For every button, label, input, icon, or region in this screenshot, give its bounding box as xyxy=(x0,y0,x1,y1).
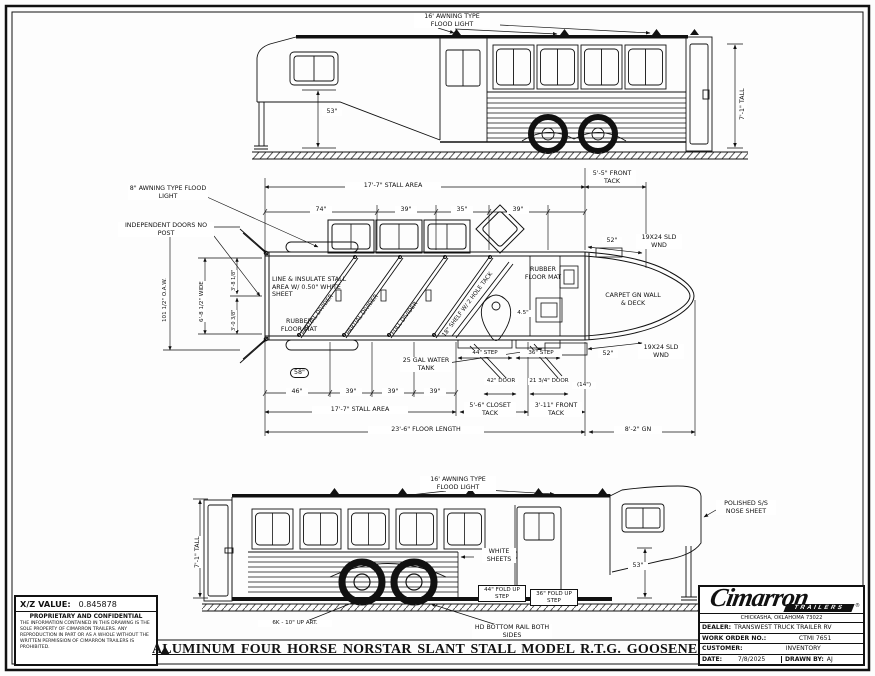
dim-gooseneck-length: 8'-2" GN xyxy=(614,426,662,434)
dim-overall-height-top: 7'-1" TALL xyxy=(739,88,747,120)
dim-inside-width: 6'-8 1/2" WIDE xyxy=(199,281,206,322)
note-white-sheets: WHITE SHEETS xyxy=(482,548,516,563)
dim-closet-tack: 5'-6" CLOSET TACK xyxy=(464,402,516,417)
confidential-title: PROPRIETARY AND CONFIDENTIAL xyxy=(16,614,156,620)
dim-front-tack-bottom: 3'-11" FRONT TACK xyxy=(530,402,582,417)
work-order-label: WORK ORDER NO.: xyxy=(702,635,766,642)
dim-rear-opening-1: 3'-8 1/8" xyxy=(231,270,237,291)
dim-45: 4.5" xyxy=(512,310,534,317)
confidential-body: THE INFORMATION CONTAINED IN THIS DRAWIN… xyxy=(16,620,156,651)
note-axle: 6K - 10" UP ART. xyxy=(258,620,332,627)
dim-stall-area-bottom: 17'-7" STALL AREA xyxy=(312,406,408,414)
xz-value-row: X/Z VALUE: 0.845878 xyxy=(16,597,156,612)
brand-banner: TRAILERS xyxy=(783,604,854,612)
dim-35: 35" xyxy=(451,206,473,214)
dim-floor-length: 23'-6" FLOOR LENGTH xyxy=(368,426,484,434)
top-view-linework xyxy=(252,29,748,159)
dim-step-36: 36" STEP xyxy=(520,350,562,357)
dim-46: 46" xyxy=(286,388,308,396)
dim-52-top: 52" xyxy=(602,237,622,245)
note-hd-bottom-rail: HD BOTTOM RAIL BOTH SIDES xyxy=(472,624,552,639)
dim-rear-opening-2: 3'-0 3/8" xyxy=(231,310,237,331)
dim-overall-height-bottom: 7'-1" TALL xyxy=(194,536,202,568)
dim-14: (14") xyxy=(572,382,596,389)
work-order-row: WORK ORDER NO.: CTMI 7651 xyxy=(700,634,863,645)
label-fold-step-36: 36" FOLD UP STEP xyxy=(530,589,578,606)
note-line-insulate: LINE & INSULATE STALL AREA W/ 0.50" WHIT… xyxy=(272,276,348,299)
label-sld-wnd-top: 19X24 SLD WND xyxy=(636,234,682,249)
label-independent-doors: INDEPENDENT DOORS NO POST xyxy=(118,222,214,237)
top-view-dimensions xyxy=(302,25,743,148)
label-flood-light-bottom: 16' AWNING TYPE FLOOD LIGHT xyxy=(420,476,496,491)
brand-address: CHICKASHA, OKLAHOMA 73022 xyxy=(700,614,863,623)
dim-door-42: 42" DOOR xyxy=(484,378,518,385)
cimarron-logo: Cimarron TRAILERS ® xyxy=(700,587,863,614)
dim-stall-area-top: 17'-7" STALL AREA xyxy=(345,182,441,190)
dim-74: 74" xyxy=(310,206,332,214)
xz-value-label: X/Z VALUE: xyxy=(20,599,71,609)
note-polished-nose-sheet: POLISHED S/S NOSE SHEET xyxy=(716,500,776,515)
dim-39c: 39" xyxy=(340,388,362,396)
note-water-tank: 25 GAL WATER TANK xyxy=(400,357,452,372)
dim-39a: 39" xyxy=(395,206,417,214)
dim-39d: 39" xyxy=(382,388,404,396)
note-rubber-floor-mat-right: RUBBER FLOOR MAT xyxy=(520,266,566,281)
drawing-title: ALUMINUM FOUR HORSE NORSTAR SLANT STALL … xyxy=(152,642,698,658)
xz-value: 0.845878 xyxy=(79,600,117,609)
date-cell: DATE: 7/8/2025 xyxy=(702,656,778,663)
dim-52-bottom: 52" xyxy=(598,350,618,358)
dealer-row: DEALER: TRANSWEST TRUCK TRAILER RV xyxy=(700,623,863,634)
drawing-sheet: 16' AWNING TYPE FLOOD LIGHT 53" 7'-1" TA… xyxy=(0,0,875,676)
dealer-label: DEALER: xyxy=(702,624,731,631)
title-block: Cimarron TRAILERS ® CHICKASHA, OKLAHOMA … xyxy=(698,585,865,666)
dim-gn-height-top: 53" xyxy=(322,108,342,116)
label-fold-step-44: 44" FOLD UP STEP xyxy=(478,585,526,602)
date-label: DATE: xyxy=(702,656,722,663)
proprietary-block: X/Z VALUE: 0.845878 PROPRIETARY AND CONF… xyxy=(14,595,158,666)
drawn-by-value: AJ xyxy=(827,656,833,663)
dim-39b: 39" xyxy=(507,206,529,214)
customer-label: CUSTOMER: xyxy=(702,645,743,652)
customer-value: INVENTORY xyxy=(746,645,861,652)
label-flood-light-top: 16' AWNING TYPE FLOOD LIGHT xyxy=(414,13,490,28)
label-sld-wnd-bottom: 19X24 SLD WND xyxy=(638,344,684,359)
dim-step-44: 44" STEP xyxy=(464,350,506,357)
drawn-by-label: DRAWN BY: xyxy=(785,656,824,663)
dim-door-21: 21 3/4" DOOR xyxy=(528,378,570,385)
label-awning-light-plan: 8" AWNING TYPE FLOOD LIGHT xyxy=(128,185,208,200)
drawn-by-cell: DRAWN BY: AJ xyxy=(781,656,861,663)
work-order-value: CTMI 7651 xyxy=(769,635,861,642)
date-value: 7/8/2025 xyxy=(725,656,778,663)
date-row: DATE: 7/8/2025 DRAWN BY: AJ xyxy=(700,655,863,665)
dim-front-tack-top: 5'-5" FRONT TACK xyxy=(588,170,636,185)
registered-mark-icon: ® xyxy=(855,603,860,609)
customer-row: CUSTOMER: INVENTORY xyxy=(700,644,863,655)
dim-fender-58: 58" xyxy=(290,368,309,378)
note-carpet-gn: CARPET GN WALL & DECK xyxy=(602,292,664,307)
dim-oaw: 101 1/2" O.A.W. xyxy=(162,278,169,322)
dealer-value: TRANSWEST TRUCK TRAILER RV xyxy=(734,624,831,631)
dim-gn-height-bottom: 53" xyxy=(628,562,648,570)
dim-39e: 39" xyxy=(424,388,446,396)
